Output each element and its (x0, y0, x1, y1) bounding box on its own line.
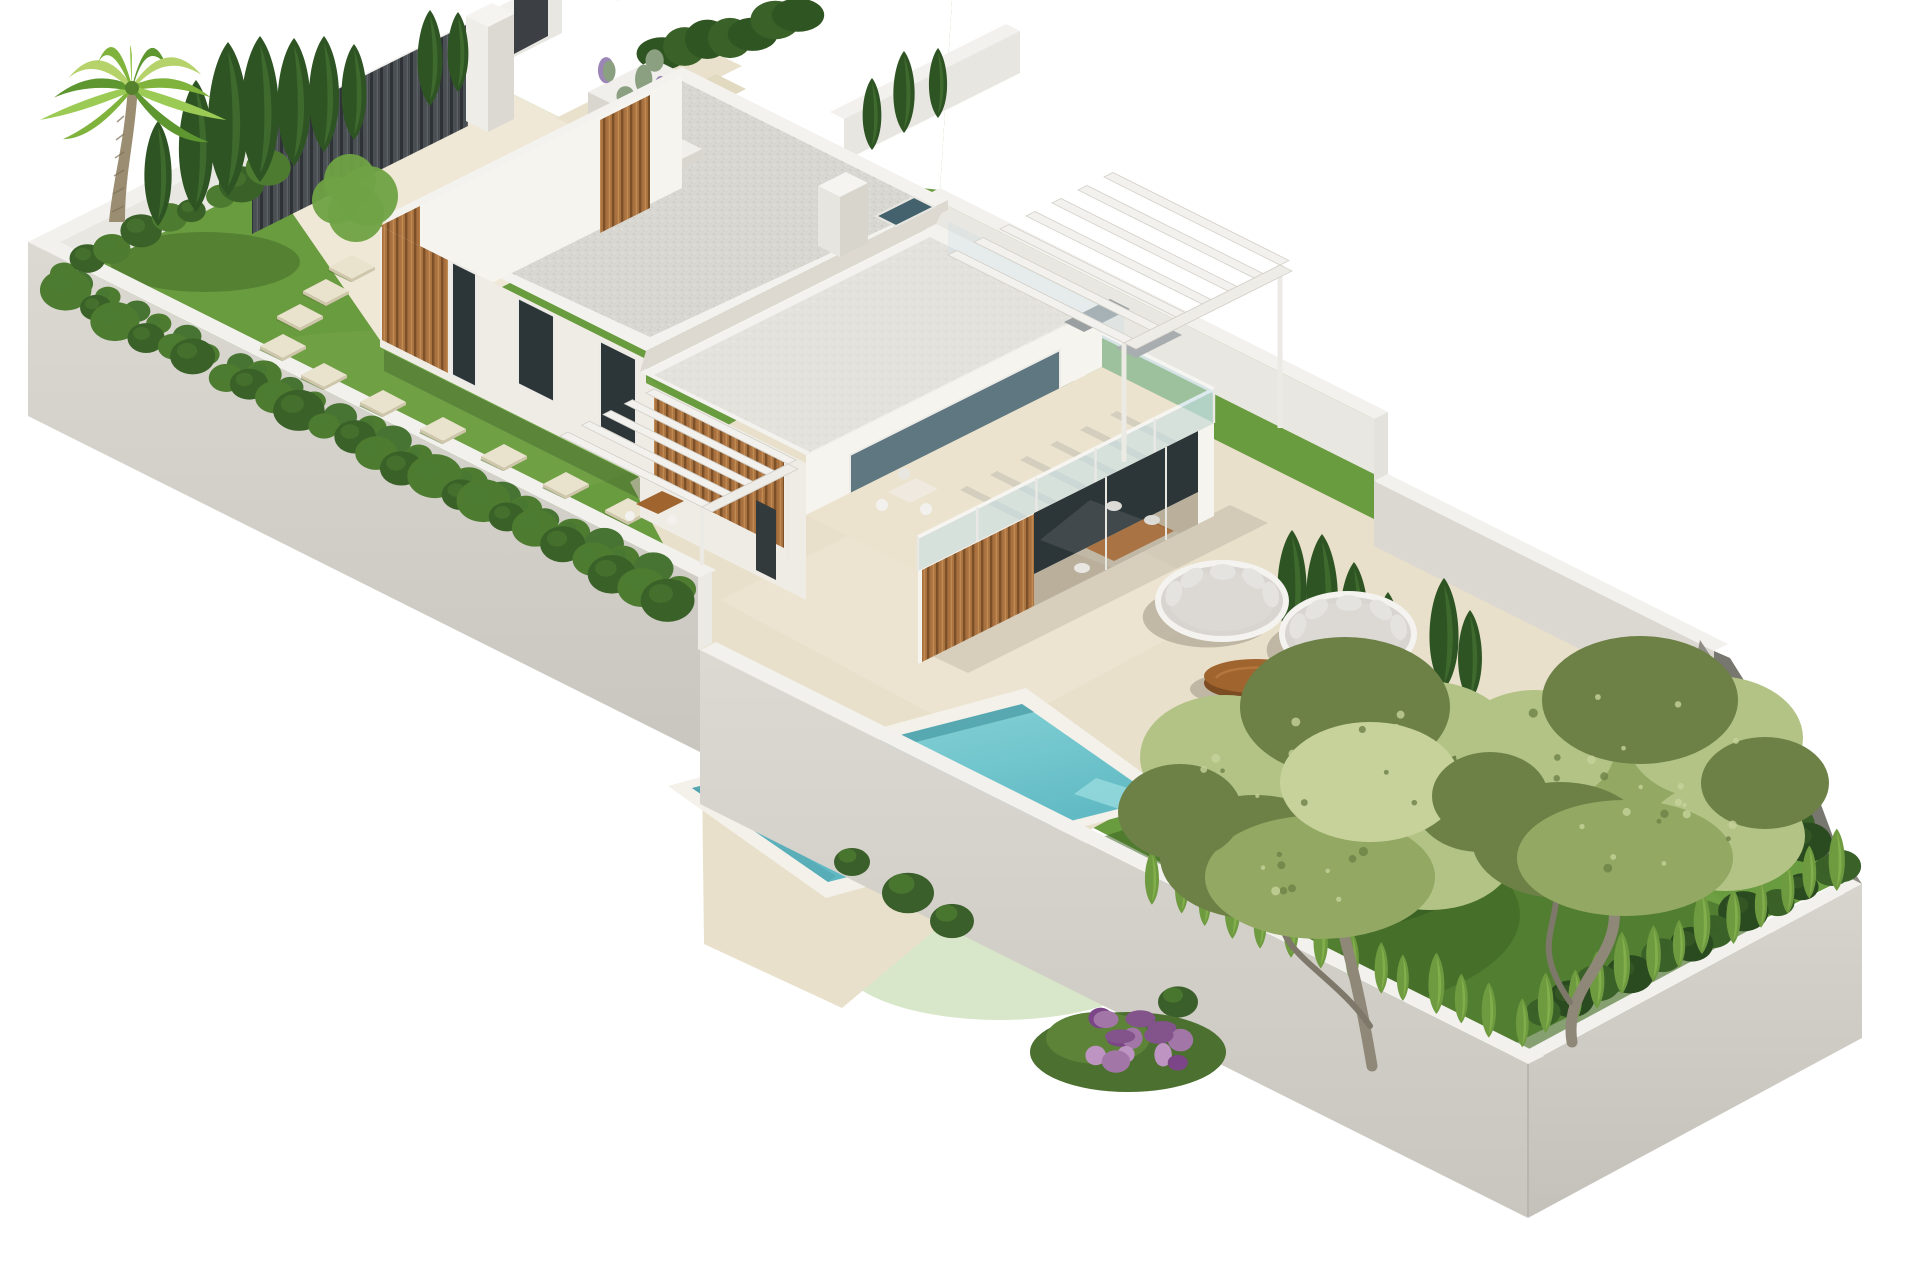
chimney-face (818, 186, 840, 257)
sw-hedge-bush-highlight (361, 441, 380, 456)
canopy-texture-dot (1683, 810, 1691, 818)
nw-hedge-bush-highlight (99, 238, 116, 251)
flower-cluster (1168, 1055, 1188, 1071)
sw-hedge-bush-highlight (494, 506, 510, 519)
palm-crown (125, 81, 139, 95)
canopy-texture-dot (1610, 854, 1616, 860)
canopy-texture-dot (1288, 750, 1296, 758)
canopy-texture-dot (1728, 821, 1736, 829)
canopy-texture-dot (1280, 887, 1287, 894)
canopy-texture-dot (1621, 746, 1626, 751)
small-bush (889, 874, 915, 894)
canopy-texture-dot (1336, 897, 1341, 902)
canopy-texture-dot (1306, 721, 1312, 727)
canopy-texture-dot (1579, 824, 1584, 829)
canopy-texture-dot (1271, 886, 1280, 895)
tree-canopy-blob (1118, 764, 1242, 860)
canopy-texture-dot (1733, 738, 1739, 744)
render-canvas (0, 0, 1920, 1280)
sw-hedge-bush-highlight (579, 547, 598, 562)
canopy-texture-dot (1603, 864, 1612, 873)
lower-terrace-chair (667, 515, 677, 525)
canopy-texture-dot (1200, 766, 1207, 773)
canopy-texture-dot (1595, 694, 1601, 700)
flower-cluster (1125, 1010, 1155, 1027)
terrace-chair (920, 503, 932, 515)
terrace-chair (898, 468, 910, 480)
sw-wall-step (698, 571, 712, 650)
lower-terrace-chair (625, 511, 635, 521)
canopy-texture-dot (1542, 808, 1547, 813)
canopy-texture-dot (1589, 748, 1597, 756)
sw-hedge-bush-highlight (281, 395, 304, 413)
sw-hedge-bush-highlight (625, 573, 647, 590)
canopy-texture-dot (1277, 852, 1282, 857)
canopy-texture-dot (1675, 701, 1681, 707)
sw-hedge-bush-highlight (519, 514, 540, 530)
bush-tree (328, 186, 384, 242)
canopy-texture-dot (1675, 799, 1682, 806)
sw-hedge-bush-highlight (547, 531, 567, 547)
window (452, 262, 476, 387)
flower-cluster (1094, 1011, 1119, 1028)
canopy-texture-dot (1349, 855, 1357, 863)
canopy-texture-dot (1554, 754, 1561, 761)
sw-hedge-back-highlight (231, 356, 243, 365)
window (518, 298, 554, 402)
sw-hedge-bush-highlight (236, 373, 253, 386)
gate-pillar-face (466, 16, 488, 132)
nw-hedge-bush-highlight (127, 218, 146, 233)
tree-canopy-blob (1542, 636, 1738, 764)
sw-hedge-bush-highlight (214, 367, 230, 379)
canopy-texture-dot (1677, 783, 1683, 789)
canopy-texture-dot (1301, 799, 1308, 806)
small-bush (1163, 987, 1183, 1002)
canopy-texture-dot (1220, 768, 1225, 773)
canopy-texture-dot (1678, 711, 1682, 715)
sw-hedge-bush-highlight (261, 385, 279, 399)
sw-hedge-bush-highlight (341, 424, 360, 439)
canopy-texture-dot (1384, 770, 1389, 775)
canopy-texture-dot (1726, 836, 1731, 841)
canopy-texture-dot (1716, 724, 1724, 732)
canopy-texture-dot (1623, 808, 1631, 816)
canopy-texture-dot (1600, 772, 1608, 780)
canopy-texture-dot (1323, 788, 1328, 793)
sw-hedge-bush-highlight (416, 460, 441, 479)
canopy-texture-dot (1359, 726, 1366, 733)
canopy-texture-dot (1353, 774, 1358, 779)
canopy-texture-dot (1638, 785, 1642, 789)
canopy-texture-dot (1660, 810, 1668, 818)
canopy-texture-dot (1288, 884, 1296, 892)
gate-pillar-side (488, 14, 514, 132)
canopy-texture-dot (1277, 861, 1285, 869)
sw-hedge-back-highlight (150, 316, 161, 325)
canopy-texture-dot (1529, 709, 1538, 718)
sw-hedge-bush-highlight (85, 298, 99, 309)
canopy-texture-dot (1261, 865, 1265, 869)
villa-plot-render (0, 0, 1920, 1280)
canopy-texture-dot (1291, 717, 1300, 726)
interior-chair (1074, 563, 1090, 573)
canopy-texture-dot (1240, 820, 1244, 824)
sw-hedge-bush-highlight (133, 327, 150, 340)
corner-hedge-highlight (1766, 892, 1781, 904)
sw-hedge-bush-highlight (595, 560, 617, 577)
terrace-chair (876, 499, 888, 511)
canopy-texture-dot (1392, 724, 1400, 732)
sw-hedge-bush-highlight (386, 456, 405, 471)
tree-canopy-blob (1280, 722, 1460, 842)
canopy-texture-dot (1682, 803, 1686, 807)
canopy-texture-dot (1255, 794, 1259, 798)
canopy-texture-dot (1359, 847, 1368, 856)
tree-canopy-blob (1701, 737, 1829, 829)
lavender (603, 60, 616, 81)
canopy-texture-dot (1325, 869, 1329, 873)
tree-canopy-blob (1517, 800, 1733, 916)
canopy-texture-dot (1411, 800, 1417, 806)
canopy-texture-dot (1211, 754, 1220, 763)
canopy-texture-dot (1564, 720, 1572, 728)
sw-hedge-bush-highlight (48, 275, 71, 293)
canopy-texture-dot (1507, 768, 1511, 772)
sw-hedge-bush-highlight (649, 584, 673, 603)
canopy-texture-dot (1657, 819, 1662, 824)
canopy-texture-dot (1553, 775, 1560, 782)
sw-hedge-bush-highlight (465, 485, 489, 504)
canopy-texture-dot (1662, 861, 1667, 866)
small-bush (936, 905, 958, 922)
canopy-texture-dot (1587, 755, 1596, 764)
tree-canopy-blob (1432, 752, 1548, 840)
canopy-texture-dot (1321, 793, 1325, 797)
nw-hedge-bush-highlight (75, 248, 91, 261)
flower-cluster (1102, 1050, 1130, 1072)
small-bush (839, 849, 857, 863)
sw-hedge-bush-highlight (177, 343, 197, 359)
canopy-texture-dot (1718, 767, 1725, 774)
canopy-texture-dot (1350, 801, 1355, 806)
sw-hedge-bush-highlight (98, 307, 120, 324)
sw-hedge-bush-highlight (313, 417, 327, 428)
ne-wall-step (1374, 412, 1388, 481)
window (756, 500, 776, 580)
flower-cluster (1105, 1029, 1135, 1043)
canopy-texture-dot (1397, 711, 1405, 719)
